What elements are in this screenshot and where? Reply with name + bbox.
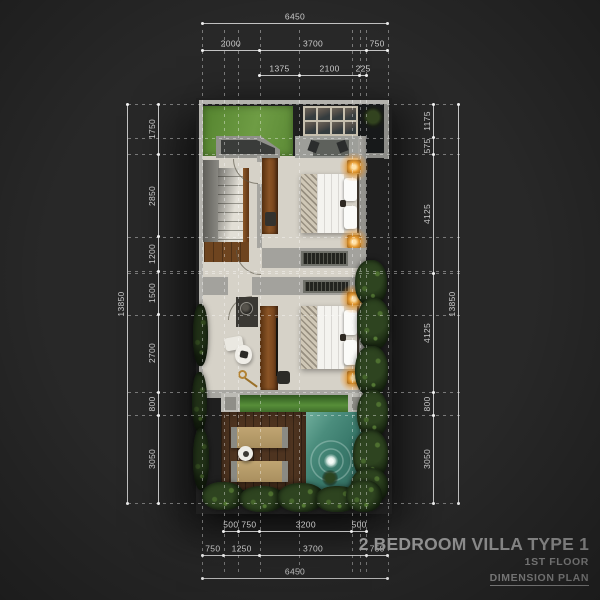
- dim-tick: [201, 49, 204, 52]
- dim-tick: [432, 502, 435, 505]
- pool-plant: [322, 470, 338, 486]
- skylight-pane: [318, 108, 329, 120]
- grid-line-vertical: [260, 30, 261, 576]
- lamp-glow: [340, 153, 368, 181]
- dim-tick: [432, 272, 435, 275]
- side-table-item: [243, 451, 249, 457]
- dim-tick: [365, 74, 368, 77]
- dim-label: 800: [423, 396, 432, 411]
- bed-throw: [301, 174, 317, 233]
- dimension-plan-canvas: 6450200037007501375210022550075032005007…: [0, 0, 600, 600]
- dim-tick: [350, 530, 353, 533]
- dim-label: 1200: [148, 244, 157, 264]
- tv-panel: [276, 318, 278, 376]
- title-block: 2 BEDROOM VILLA TYPE 1 1ST FLOOR DIMENSI…: [359, 534, 589, 586]
- dim-label: 6450: [285, 13, 305, 22]
- dim-label: 13850: [448, 291, 457, 316]
- grid-line-horizontal: [128, 415, 460, 416]
- dim-label: 750: [205, 545, 220, 554]
- dim-line: [260, 75, 367, 76]
- dim-tick: [237, 530, 240, 533]
- nightstand: [347, 160, 361, 173]
- grid-line-vertical: [202, 30, 203, 576]
- toilet-lid-accent: [239, 350, 248, 359]
- planter-strip: [240, 395, 348, 412]
- courtyard-plant: [361, 105, 385, 129]
- dim-tick: [157, 313, 160, 316]
- bedroom1-bed: [301, 174, 359, 233]
- grid-line-horizontal: [128, 237, 460, 238]
- dim-label: 750: [370, 40, 385, 49]
- dim-label: 3700: [303, 40, 323, 49]
- skylight-pane: [305, 122, 316, 134]
- dim-label: 1250: [232, 545, 252, 554]
- bed-frame: [357, 174, 359, 233]
- grid-line-vertical: [224, 30, 225, 576]
- bed-ribbon: [340, 200, 346, 207]
- dim-label: 2850: [148, 185, 157, 205]
- dim-tick: [432, 103, 435, 106]
- dim-tick: [222, 554, 225, 557]
- dim-label: 13850: [117, 291, 126, 316]
- dim-line: [433, 104, 434, 503]
- dim-label: 500: [352, 521, 367, 530]
- dim-tick: [432, 414, 435, 417]
- grid-line-horizontal: [128, 315, 460, 316]
- dim-label: 2100: [320, 65, 340, 74]
- dim-label: 500: [223, 521, 238, 530]
- grid-line-vertical: [366, 30, 367, 576]
- grid-line-horizontal: [128, 273, 460, 274]
- dim-label: 1175: [423, 111, 432, 130]
- grid-line-vertical: [352, 30, 353, 576]
- skylight-pane: [345, 108, 356, 120]
- lounger-end: [231, 427, 237, 448]
- plan-type-label: DIMENSION PLAN: [490, 572, 589, 586]
- vessel-sink: [240, 302, 253, 315]
- lounger-end: [231, 461, 237, 482]
- dim-label: 4125: [423, 204, 432, 224]
- stool: [277, 371, 290, 384]
- grid-line-vertical: [360, 30, 361, 576]
- dim-tick: [157, 153, 160, 156]
- grid-line-horizontal: [128, 138, 460, 139]
- dim-tick: [157, 391, 160, 394]
- understair-storage: [203, 160, 219, 242]
- hedge-bush: [193, 428, 209, 490]
- dim-tick: [201, 22, 204, 25]
- louver-vent-1: [301, 251, 348, 266]
- dim-line: [202, 50, 388, 51]
- lounger-end: [282, 461, 288, 482]
- dim-tick: [258, 554, 261, 557]
- grid-line-horizontal: [128, 392, 460, 393]
- staircase-shadow: [218, 168, 245, 242]
- dim-label: 1750: [148, 119, 157, 139]
- dim-tick: [258, 74, 261, 77]
- skylight-pane: [305, 108, 316, 120]
- dim-label: 750: [241, 521, 256, 530]
- hedge-bush: [192, 372, 207, 432]
- skylight-pane: [332, 122, 343, 134]
- dim-tick: [457, 103, 460, 106]
- dim-tick: [222, 530, 225, 533]
- dim-label: 4125: [423, 323, 432, 343]
- skylight-pane: [345, 122, 356, 134]
- dim-tick: [298, 74, 301, 77]
- dim-line: [458, 104, 459, 503]
- dim-tick: [365, 530, 368, 533]
- dim-tick: [201, 554, 204, 557]
- plan-floor-label: 1ST FLOOR: [359, 556, 589, 568]
- dim-tick: [157, 270, 160, 273]
- dim-tick: [365, 49, 368, 52]
- dim-label: 3700: [303, 545, 323, 554]
- dim-label: 2700: [148, 343, 157, 363]
- dim-tick: [157, 502, 160, 505]
- skylight-pane: [332, 108, 343, 120]
- bed-pillow: [344, 178, 357, 201]
- grid-line-horizontal: [128, 154, 460, 155]
- dim-line: [158, 104, 159, 503]
- dim-label: 6450: [285, 568, 305, 577]
- dim-line: [202, 23, 388, 24]
- grid-line-horizontal: [128, 104, 460, 105]
- pool-light-glow: [324, 454, 338, 468]
- dim-label: 1375: [269, 65, 289, 74]
- hedge-bush: [357, 298, 390, 350]
- grid-line-horizontal: [128, 271, 460, 272]
- dim-tick: [157, 103, 160, 106]
- dim-tick: [126, 103, 129, 106]
- dim-tick: [432, 153, 435, 156]
- bed-ribbon: [340, 334, 346, 341]
- dim-tick: [201, 577, 204, 580]
- lounger-end: [282, 427, 288, 448]
- dim-line: [224, 531, 367, 532]
- plan-title: 2 BEDROOM VILLA TYPE 1: [359, 534, 589, 555]
- dim-line: [127, 104, 128, 503]
- dim-tick: [258, 530, 261, 533]
- dim-label: 1500: [148, 283, 157, 303]
- dim-label: 2000: [221, 40, 241, 49]
- grid-line-horizontal: [128, 503, 460, 504]
- dim-tick: [157, 414, 160, 417]
- dim-label: 3200: [296, 521, 316, 530]
- dim-tick: [432, 391, 435, 394]
- skylight-canopy: [303, 106, 358, 136]
- skylight-pane: [318, 122, 329, 134]
- dim-label: 800: [148, 396, 157, 411]
- grid-line-vertical: [388, 30, 389, 576]
- dim-tick: [386, 22, 389, 25]
- dim-tick: [126, 502, 129, 505]
- dim-tick: [157, 235, 160, 238]
- dim-tick: [258, 49, 261, 52]
- grid-line-vertical: [238, 30, 239, 576]
- hall-bench: [265, 212, 276, 226]
- bed-pillow: [344, 310, 357, 335]
- dim-label: 575: [423, 139, 432, 154]
- dim-tick: [386, 49, 389, 52]
- dim-label: 3050: [148, 449, 157, 469]
- dim-label: 225: [356, 65, 371, 74]
- hedge-bush: [193, 304, 208, 366]
- bed-pillow: [344, 206, 357, 229]
- dim-tick: [457, 502, 460, 505]
- grid-line-vertical: [299, 30, 300, 576]
- dim-label: 3050: [423, 449, 432, 469]
